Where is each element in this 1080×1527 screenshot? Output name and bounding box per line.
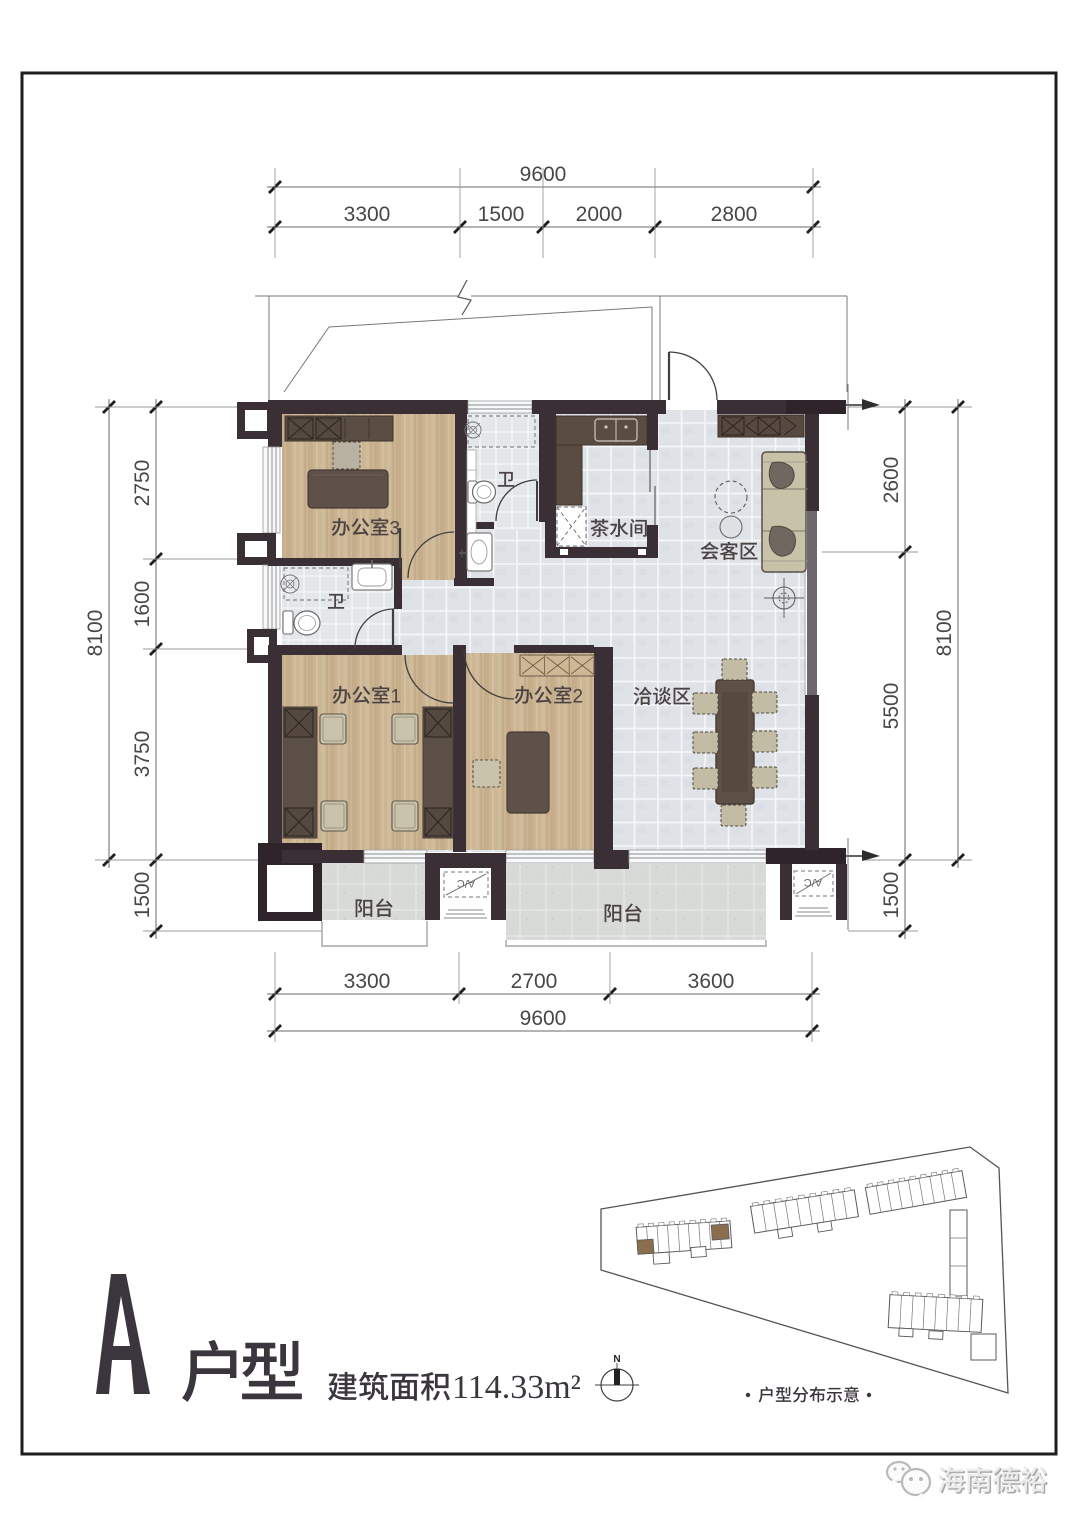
svg-text:114.33m²: 114.33m²	[452, 1369, 581, 1406]
svg-text:1500: 1500	[478, 203, 525, 226]
svg-text:3750: 3750	[131, 731, 154, 778]
svg-text:1500: 1500	[880, 872, 903, 919]
svg-text:2: 2	[573, 686, 584, 707]
svg-text:3: 3	[390, 518, 401, 539]
svg-text:5500: 5500	[880, 683, 903, 730]
svg-text:2700: 2700	[511, 970, 558, 993]
svg-text:9600: 9600	[520, 1007, 567, 1030]
svg-text:2600: 2600	[880, 457, 903, 504]
svg-text:3300: 3300	[344, 970, 391, 993]
svg-text:3600: 3600	[688, 970, 735, 993]
svg-text:1: 1	[391, 686, 402, 707]
svg-text:8100: 8100	[84, 610, 107, 657]
svg-text:N: N	[613, 1354, 620, 1365]
svg-text:2800: 2800	[711, 203, 758, 226]
svg-text:A/C: A/C	[804, 876, 822, 888]
svg-text:2750: 2750	[131, 460, 154, 507]
svg-text:1500: 1500	[131, 872, 154, 919]
svg-text:3300: 3300	[344, 203, 391, 226]
svg-text:2000: 2000	[576, 203, 623, 226]
svg-text:1600: 1600	[131, 581, 154, 628]
svg-text:A/C: A/C	[457, 877, 475, 889]
svg-text:8100: 8100	[933, 610, 956, 657]
